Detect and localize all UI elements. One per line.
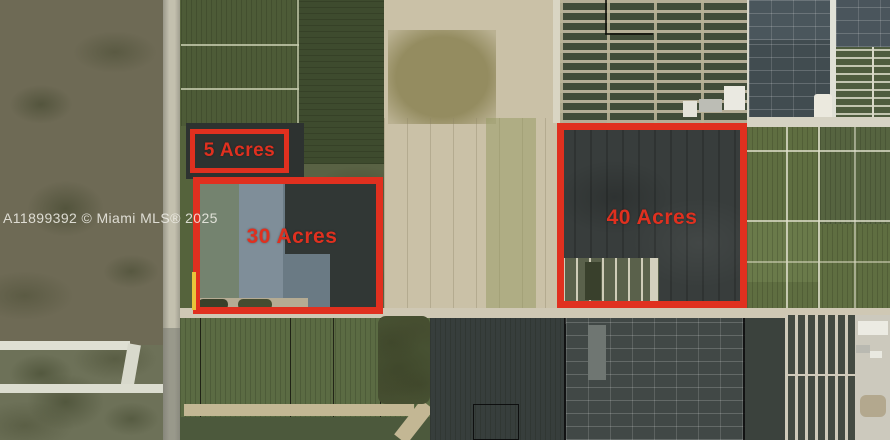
white-building [683, 101, 697, 117]
row-divider [872, 47, 874, 123]
parcel-boundary-step [605, 0, 607, 34]
plot-boundary-line [747, 261, 890, 263]
shade-house-complex [430, 318, 890, 440]
farm-road-east [747, 117, 890, 127]
plot-boundary-line [818, 127, 820, 310]
scrubland [0, 0, 164, 348]
yellow-boundary-line [192, 272, 196, 310]
parcel-outline-30-acres: 30 Acres [193, 177, 383, 314]
parcel-label-40-acres: 40 Acres [607, 206, 698, 230]
greenhouse-rows [836, 47, 890, 123]
canal-road [184, 404, 414, 416]
greenhouse-panel-rows [785, 315, 855, 440]
plot-boundary-line [747, 220, 890, 222]
fallow-field [384, 0, 560, 318]
crop-plot [299, 0, 384, 164]
row-divider [785, 374, 855, 376]
crop-fields-east [747, 127, 890, 310]
gray-structure [856, 345, 870, 353]
parcel-outline-small [473, 404, 519, 440]
dirt-road-west-1 [0, 341, 130, 350]
white-building [724, 86, 745, 110]
mls-watermark: A11899392 © Miami MLS® 2025 [3, 210, 218, 226]
shade-house-block-top [749, 0, 830, 40]
white-structure [870, 351, 882, 358]
plot-boundary-line [854, 127, 856, 310]
shade-house-corner [836, 0, 890, 47]
white-building [858, 321, 888, 335]
plot-boundary-line [181, 88, 299, 90]
crop-plot [747, 222, 820, 282]
tilled-patch [388, 30, 496, 124]
plot-boundary-line [181, 44, 299, 46]
dirt-road-west-2 [0, 384, 184, 393]
dark-scrub-patch [378, 316, 430, 404]
aerial-listing-photo: 5 Acres 30 Acres 40 Acres A11899392 © Mi… [0, 0, 890, 440]
dirt-patch [860, 395, 886, 417]
plot-boundary-line [786, 127, 788, 310]
parcel-outline-5-acres: 5 Acres [190, 129, 289, 173]
parcel-label-30-acres: 30 Acres [247, 225, 338, 249]
parcel-boundary-step [605, 33, 653, 35]
shade-block-dark [745, 318, 785, 440]
main-road-lower-shade [163, 328, 181, 440]
parcel-outline-40-acres: 40 Acres [557, 123, 747, 308]
light-panel-patch [588, 325, 606, 380]
gray-building [699, 99, 722, 112]
green-strip [486, 118, 536, 318]
parcel-label-5-acres: 5 Acres [204, 140, 275, 162]
canal-bank-green [180, 417, 430, 440]
crop-plot [181, 0, 299, 126]
plot-boundary-line [747, 150, 890, 152]
